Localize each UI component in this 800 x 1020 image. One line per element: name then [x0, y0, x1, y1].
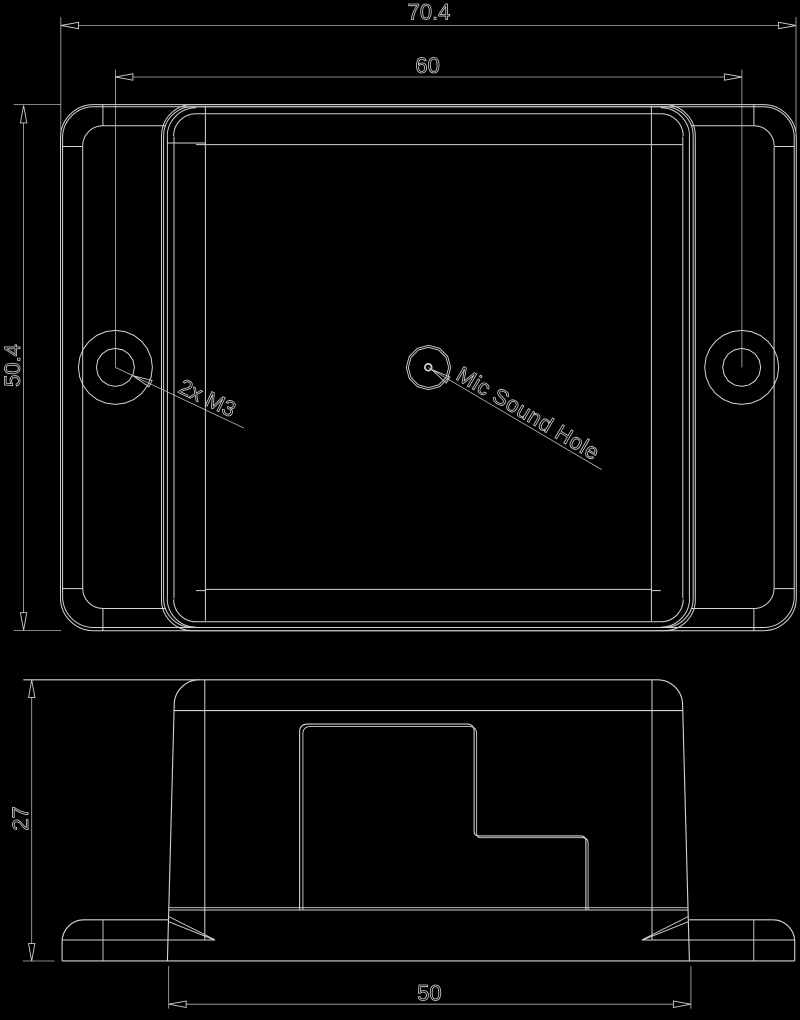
svg-text:70.4: 70.4	[408, 0, 451, 25]
svg-text:60: 60	[415, 53, 439, 78]
svg-text:50.4: 50.4	[0, 344, 25, 387]
svg-text:27: 27	[8, 806, 33, 830]
svg-text:50: 50	[417, 980, 441, 1005]
